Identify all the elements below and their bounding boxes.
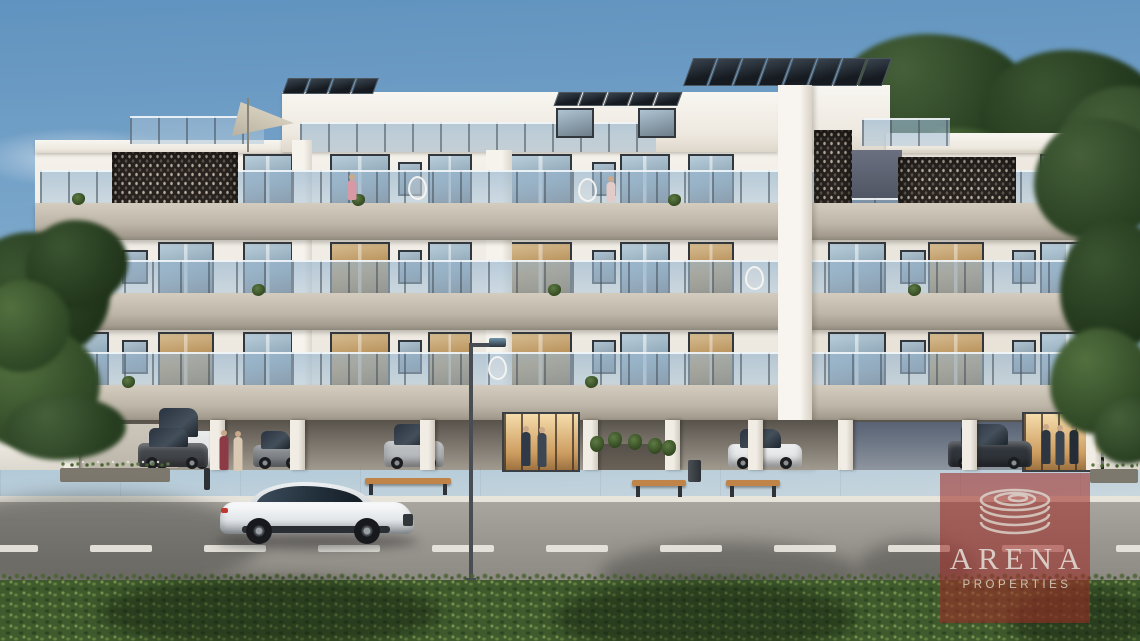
- spiral-rings-icon: [965, 485, 1065, 543]
- watermark-brand: ARENA: [944, 543, 1087, 574]
- render-canvas: ARENA PROPERTIES: [0, 0, 1140, 641]
- shadow-on-hedge: [100, 578, 440, 641]
- tree-canopy: [4, 396, 126, 460]
- watermark-subtitle: PROPERTIES: [959, 579, 1072, 591]
- watermark-overlay: ARENA PROPERTIES: [940, 473, 1090, 623]
